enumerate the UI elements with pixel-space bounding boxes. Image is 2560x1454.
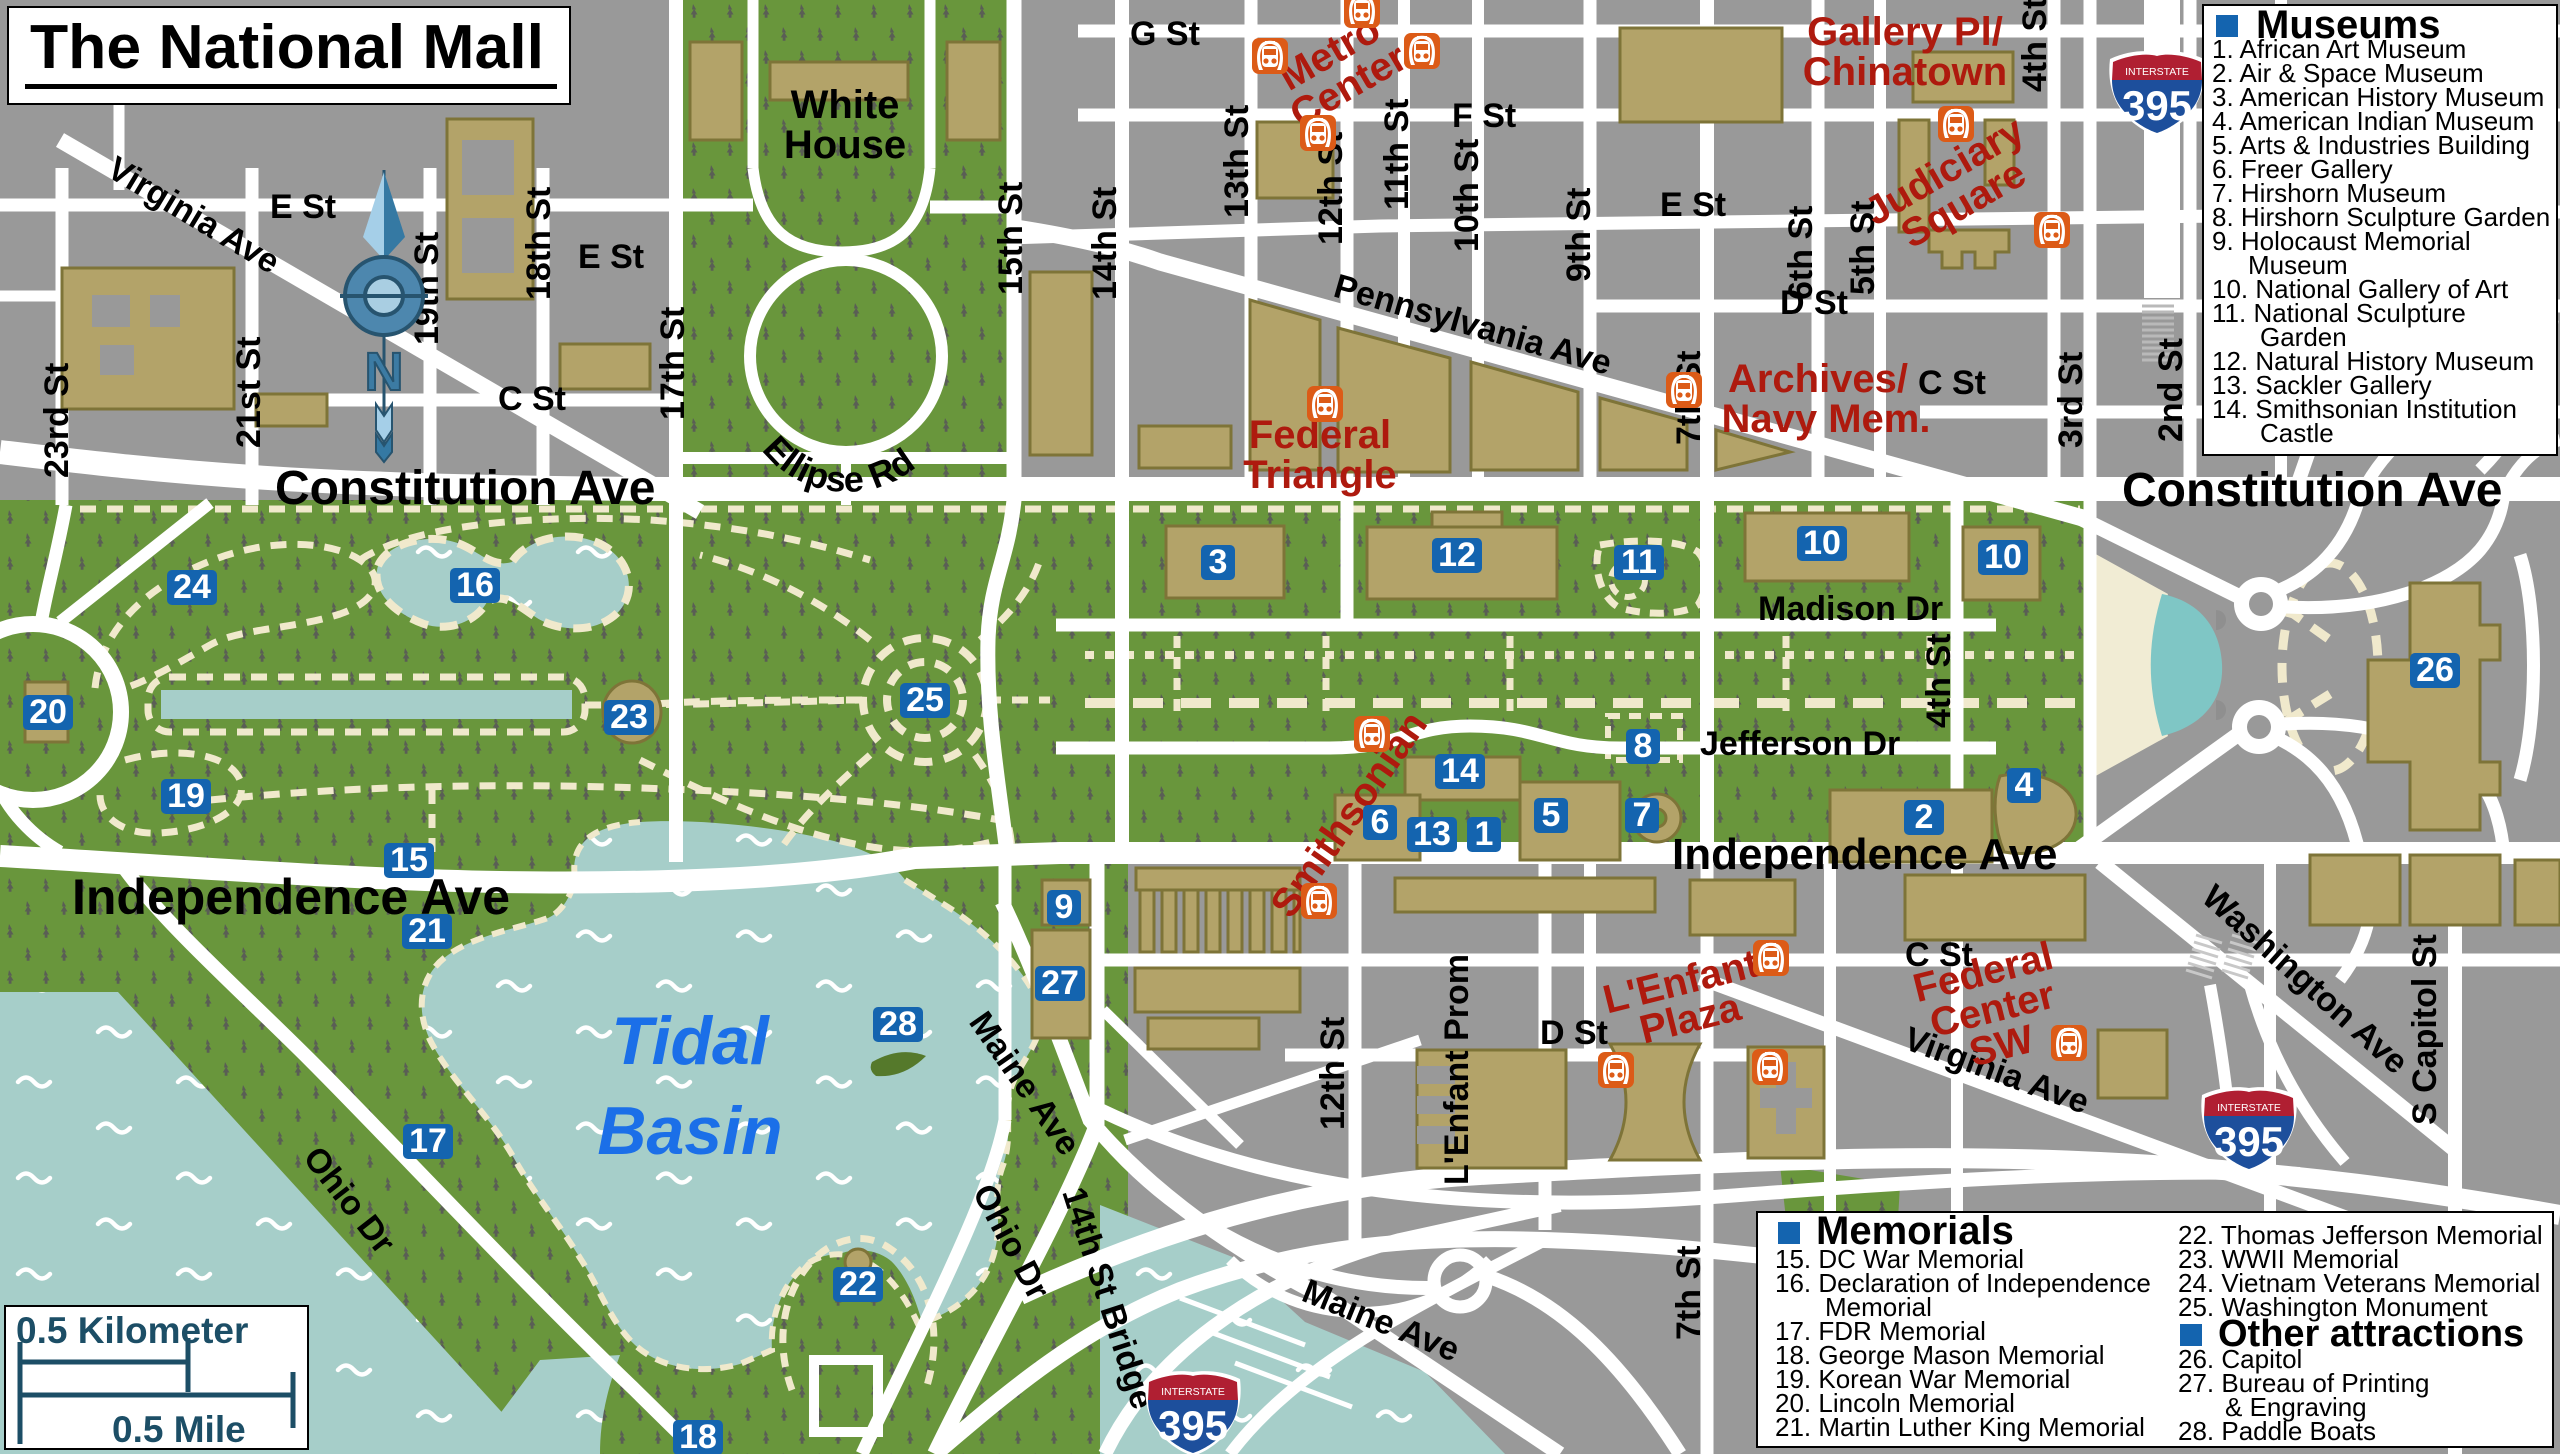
svg-text:0.5 Kilometer: 0.5 Kilometer <box>16 1310 248 1351</box>
svg-text:17: 17 <box>409 1122 447 1160</box>
svg-text:4th St: 4th St <box>1920 634 1958 728</box>
svg-text:E St: E St <box>578 238 644 276</box>
svg-text:Archives/: Archives/ <box>1728 357 1908 401</box>
svg-text:19: 19 <box>167 777 205 815</box>
svg-text:6th St: 6th St <box>1782 206 1820 300</box>
svg-text:Chinatown: Chinatown <box>1803 50 2007 94</box>
svg-text:Constitution Ave: Constitution Ave <box>2122 464 2502 517</box>
svg-text:Navy Mem.: Navy Mem. <box>1722 397 1931 441</box>
svg-text:2: 2 <box>1915 798 1934 836</box>
svg-text:21st St: 21st St <box>230 337 268 449</box>
svg-text:24: 24 <box>173 568 211 606</box>
svg-text:0.5 Mile: 0.5 Mile <box>112 1409 246 1450</box>
svg-text:28: 28 <box>879 1005 917 1043</box>
svg-text:N: N <box>365 342 404 402</box>
svg-text:14th St: 14th St <box>1086 187 1124 300</box>
svg-text:23rd St: 23rd St <box>38 363 76 478</box>
svg-text:26: 26 <box>2416 651 2454 689</box>
svg-text:9: 9 <box>1055 888 1074 926</box>
svg-text:28. Paddle Boats: 28. Paddle Boats <box>2178 1416 2376 1446</box>
svg-text:2nd St: 2nd St <box>2152 338 2190 442</box>
svg-text:Tidal: Tidal <box>611 1003 771 1079</box>
svg-text:6: 6 <box>1371 803 1390 841</box>
svg-text:3rd St: 3rd St <box>2052 352 2090 448</box>
svg-text:12: 12 <box>1438 536 1476 574</box>
svg-text:8: 8 <box>1634 727 1653 765</box>
svg-text:Constitution Ave: Constitution Ave <box>275 462 655 515</box>
svg-text:D St: D St <box>1540 1014 1608 1052</box>
svg-text:21: 21 <box>408 912 446 950</box>
svg-text:F St: F St <box>1452 97 1516 135</box>
svg-text:14. Smithsonian Institution: 14. Smithsonian Institution <box>2212 394 2517 424</box>
svg-text:20: 20 <box>29 693 67 731</box>
svg-text:15th St: 15th St <box>992 182 1030 295</box>
svg-text:3: 3 <box>1209 543 1228 581</box>
svg-text:18th St: 18th St <box>520 187 558 300</box>
svg-text:5: 5 <box>1542 796 1561 834</box>
svg-text:White: White <box>791 83 900 127</box>
svg-text:C St: C St <box>498 380 566 418</box>
svg-text:Basin: Basin <box>597 1093 782 1169</box>
svg-text:12th St: 12th St <box>1314 1017 1352 1130</box>
svg-text:15: 15 <box>390 841 428 879</box>
svg-text:7: 7 <box>1633 796 1652 834</box>
svg-text:G St: G St <box>1130 15 1200 53</box>
svg-text:21. Martin Luther King Memoria: 21. Martin Luther King Memorial <box>1775 1412 2145 1442</box>
svg-text:Independence Ave: Independence Ave <box>1672 830 2058 879</box>
svg-text:Castle: Castle <box>2260 418 2334 448</box>
svg-text:10: 10 <box>1803 524 1841 562</box>
svg-text:Madison Dr: Madison Dr <box>1758 590 1943 628</box>
svg-text:7th St: 7th St <box>1670 1246 1708 1340</box>
svg-text:27: 27 <box>1041 964 1079 1002</box>
svg-text:16: 16 <box>456 566 494 604</box>
svg-text:23: 23 <box>610 698 648 736</box>
svg-text:9th St: 9th St <box>1560 188 1598 282</box>
svg-text:E St: E St <box>1660 186 1726 224</box>
svg-text:E St: E St <box>270 188 336 226</box>
svg-text:4: 4 <box>2015 766 2034 804</box>
svg-text:L'Enfant Prom: L'Enfant Prom <box>1438 954 1476 1185</box>
svg-text:13th St: 13th St <box>1218 105 1256 218</box>
svg-text:Other attractions: Other attractions <box>2218 1313 2524 1355</box>
svg-text:11: 11 <box>1621 543 1657 581</box>
svg-text:S Capitol St: S Capitol St <box>2406 934 2444 1125</box>
svg-text:Gallery Pl/: Gallery Pl/ <box>1807 10 2003 54</box>
svg-text:1: 1 <box>1475 815 1494 853</box>
svg-text:14: 14 <box>1441 752 1479 790</box>
svg-text:22: 22 <box>839 1265 877 1303</box>
svg-text:10th St: 10th St <box>1448 139 1486 252</box>
svg-text:House: House <box>784 123 906 167</box>
svg-text:17th St: 17th St <box>654 307 692 420</box>
svg-text:25: 25 <box>906 681 944 719</box>
svg-text:13: 13 <box>1413 815 1451 853</box>
svg-text:Triangle: Triangle <box>1243 453 1396 497</box>
svg-text:Jefferson Dr: Jefferson Dr <box>1700 725 1900 763</box>
svg-text:The National Mall: The National Mall <box>30 13 544 82</box>
svg-text:18: 18 <box>679 1418 717 1454</box>
svg-text:4th St: 4th St <box>2016 0 2054 92</box>
svg-text:11th St: 11th St <box>1378 99 1416 210</box>
svg-text:10: 10 <box>1984 538 2022 576</box>
